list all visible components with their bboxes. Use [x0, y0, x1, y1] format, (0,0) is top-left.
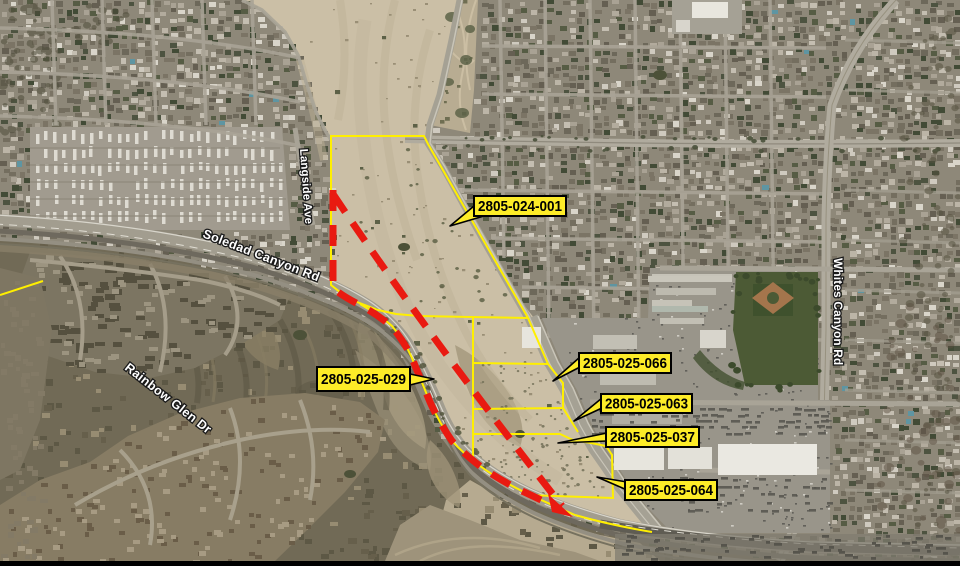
svg-text:2805-025-066: 2805-025-066 [583, 356, 667, 372]
svg-text:Whites Canyon Rd: Whites Canyon Rd [831, 258, 845, 365]
svg-text:2805-025-063: 2805-025-063 [605, 397, 688, 413]
svg-text:2805-024-001: 2805-024-001 [478, 199, 562, 215]
svg-text:2805-025-029: 2805-025-029 [321, 372, 406, 388]
svg-text:2805-025-037: 2805-025-037 [610, 430, 695, 446]
svg-text:2805-025-064: 2805-025-064 [629, 483, 714, 499]
